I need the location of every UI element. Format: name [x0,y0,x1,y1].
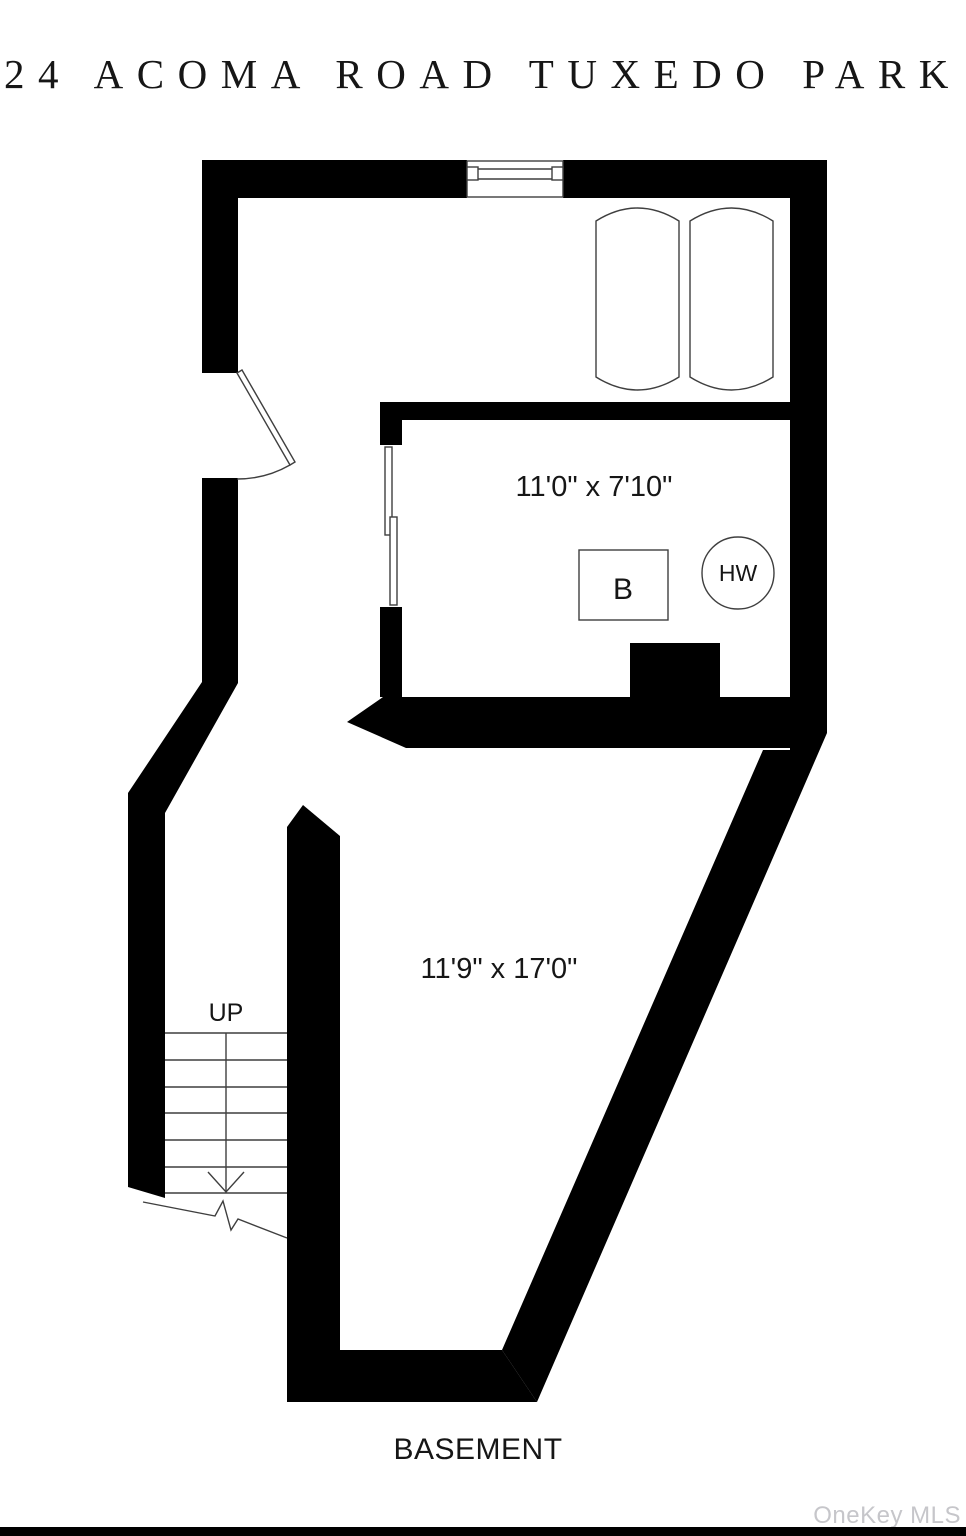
boiler-label: B [613,573,633,606]
wall-top-left-and-upper-left [202,160,467,373]
watermark: OneKey MLS [813,1502,961,1530]
tanks [596,208,773,390]
wall-main-room-left-and-bottom [287,805,537,1402]
wall-boiler-room-left-stub [380,607,402,697]
hot-water-heater-label: HW [719,560,758,586]
wall-boiler-room-top [380,402,790,445]
tank-icon [690,208,773,390]
basement-floorplan: B HW 11'0" x 7'10" 11'9" x 17'0" UP [0,0,966,1536]
room-dimensions-label-boiler-room: 11'0" x 7'10" [516,471,673,503]
window-symbol [467,161,563,197]
wall-main-room-right-diagonal [502,697,827,1402]
stair-break-line [143,1201,287,1238]
window-jamb-left [467,167,478,180]
hot-water-heater-symbol: HW [702,537,774,609]
door-leaf [237,370,295,465]
tank-icon [596,208,679,390]
sliding-door-panel [390,517,397,605]
door-symbol [237,370,295,479]
sliding-door-symbol [385,447,397,605]
stairs-up-label: UP [209,999,244,1027]
window-jamb-right [552,167,563,180]
floorplan-page: 24 ACOMA ROAD TUXEDO PARK [0,0,966,1536]
boiler-symbol: B [579,550,668,620]
bottom-bar [0,1527,966,1536]
room-dimensions-label-main-room: 11'9" x 17'0" [421,953,578,985]
door-swing-arc [237,465,290,479]
wall-boiler-room-bottom-with-chimney [347,643,790,748]
wall-left-lower-with-diagonal [128,478,238,1198]
floor-level-label: BASEMENT [393,1433,562,1466]
